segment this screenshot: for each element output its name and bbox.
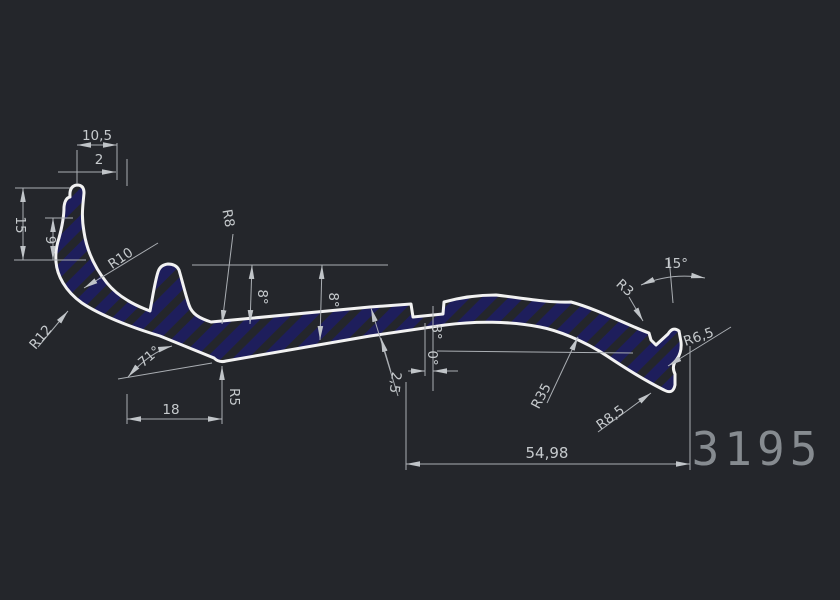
dim-left-height-label: 15 <box>12 216 28 233</box>
angle-top-first-label: 8° <box>254 289 270 304</box>
angle-top-second-label: 8° <box>325 292 341 307</box>
bottom-left-width-label: 18 <box>162 402 179 418</box>
angle-notch-label: 0° <box>424 350 440 365</box>
dim-left-inner-height-label: 9 <box>42 236 58 245</box>
radius-bottom-vertex-label: R5 <box>226 388 242 406</box>
dim-top-wall-label: 2 <box>95 152 104 168</box>
cad-viewport: 10,5 2 15 9 R10 R12 <box>0 0 840 600</box>
angle-tip-label: 15° <box>664 256 688 272</box>
part-number: 3195 <box>692 422 823 476</box>
angle-mid-label: 8° <box>428 324 444 339</box>
technical-drawing-canvas: 10,5 2 15 9 R10 R12 <box>0 0 840 600</box>
radius-bump-fillet-label: R8 <box>218 208 237 228</box>
dim-top-width-label: 10,5 <box>82 128 112 144</box>
wall-thickness-label: 2,5 <box>386 371 404 394</box>
overall-width-label: 54,98 <box>526 444 569 462</box>
